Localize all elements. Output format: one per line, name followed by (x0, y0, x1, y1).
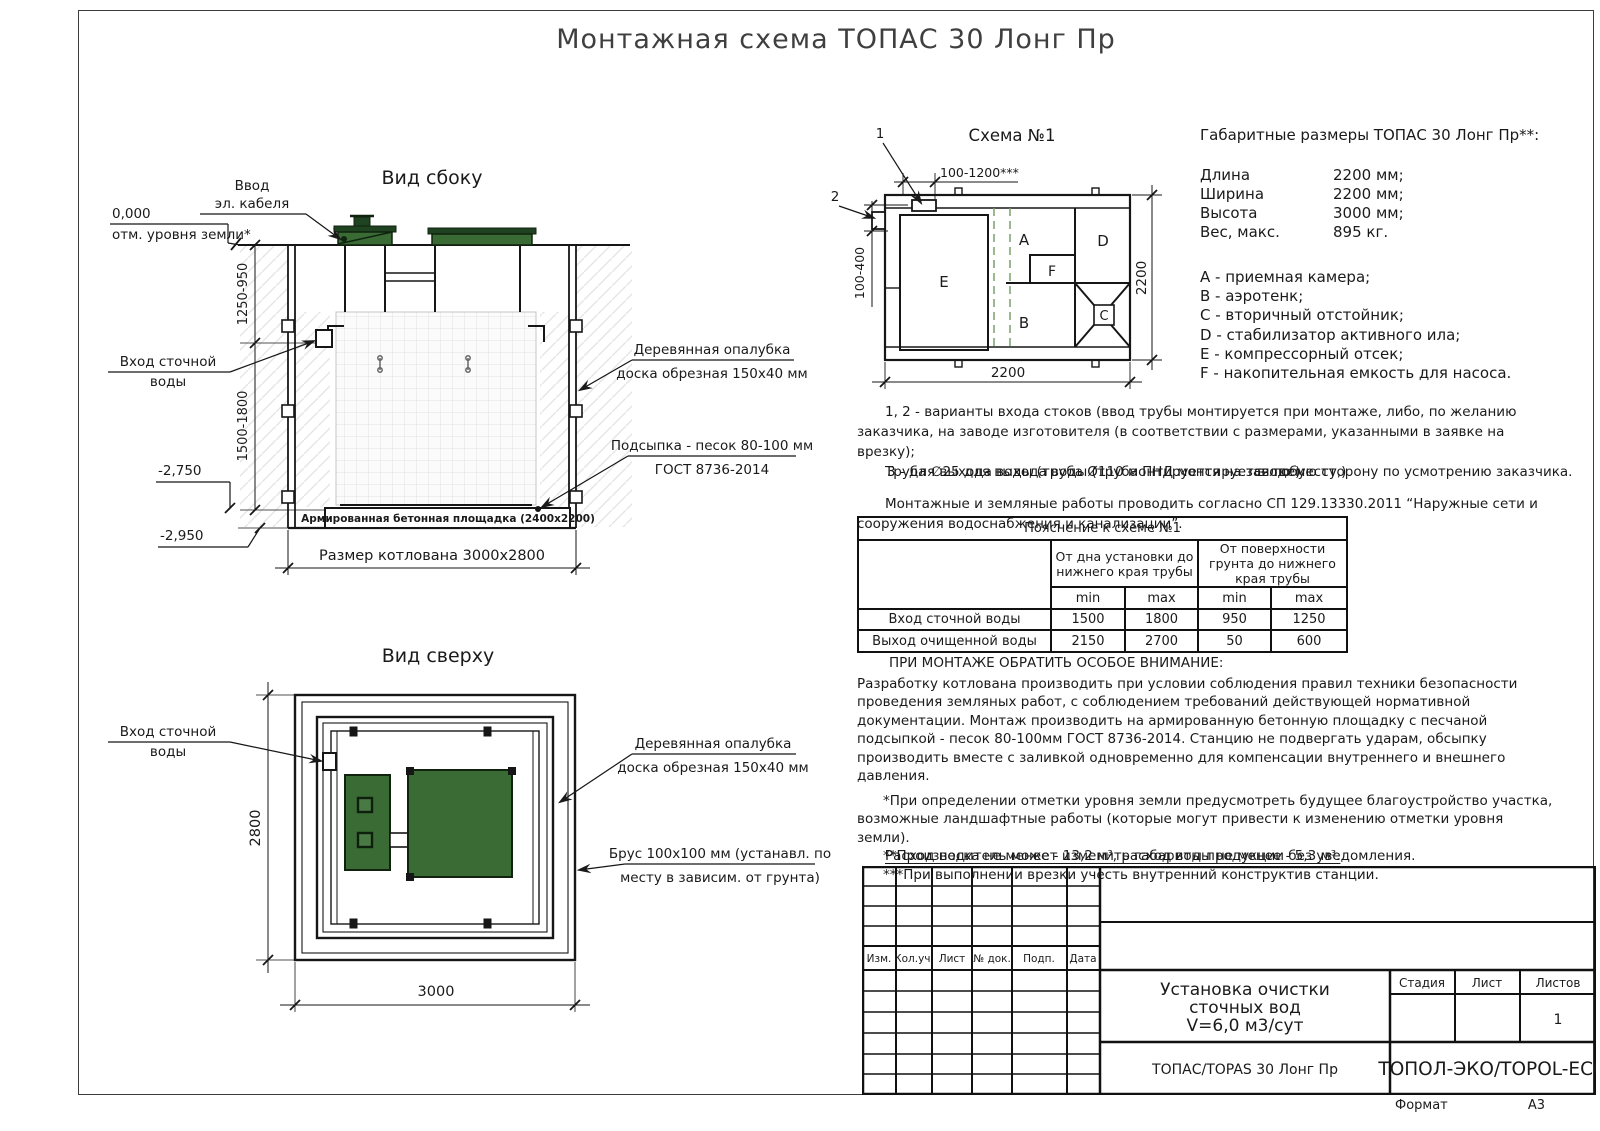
rev-header: Подп. (1023, 953, 1055, 965)
callout-2-label: 2 (831, 189, 840, 205)
note-overlap-b: 3 - для выхода воды (труба Ø110 монтируе… (887, 462, 1300, 482)
formwork-top-label-1: Деревянная опалубка (635, 736, 792, 752)
table-corner-cell (858, 540, 1051, 609)
concrete-pad-label: Армированная бетонная площадка (2400х220… (301, 513, 595, 525)
pipe-variant-1 (912, 200, 936, 211)
top-view-drawing: Вид сверху Вход сточной воды (80, 640, 850, 1040)
beam-label-1: Брус 100х100 мм (устанавл. по (609, 846, 831, 862)
page-title: Монтажная схема ТОПАС 30 Лонг Пр (78, 24, 1594, 55)
spec-label: Ширина (1200, 185, 1333, 204)
footnote-1: *При определении отметки уровня земли пр… (857, 792, 1557, 848)
rev-header: Изм. (867, 953, 892, 965)
side-view-drawing: Вид сбоку Армированная бетонная площадка… (80, 160, 850, 612)
company-name: ТОПОЛ-ЭКО/TOPOL-ECO (1377, 1059, 1596, 1080)
spec-row: Высота 3000 мм; (1200, 204, 1590, 223)
dim-top-label: 100-1200*** (940, 165, 1019, 180)
legend-item: F - накопительная емкость для насоса. (1200, 364, 1590, 383)
table-group-2: От поверхности грунта до нижнего края тр… (1198, 540, 1347, 587)
schema-drawing: Схема №1 E A F B D C 1 2 (820, 115, 1200, 405)
spec-label: Длина (1200, 166, 1333, 185)
spec-value: 895 кг. (1333, 223, 1388, 242)
spec-value: 2200 мм; (1333, 185, 1404, 204)
cable-entry-label-1: Ввод (235, 178, 270, 194)
legend-item: D - стабилизатор активного ила; (1200, 326, 1590, 345)
inlet-top-label-1: Вход сточной (120, 724, 217, 740)
table-row: Выход очищенной воды 2150 2700 50 600 (858, 630, 1347, 652)
spec-label: Вес, макс. (1200, 223, 1333, 242)
row-label: Выход очищенной воды (858, 630, 1051, 652)
project-title-line3: V=6,0 м3/сут (1187, 1016, 1304, 1036)
explanation-table: Пояснение к схеме №1 От дна установки до… (857, 516, 1348, 653)
dim-2800-label: 2800 (248, 810, 264, 847)
table-row: Вход сточной воды 1500 1800 950 1250 (858, 609, 1347, 630)
bedding-label-2: ГОСТ 8736-2014 (655, 462, 769, 478)
cover-connector (390, 833, 408, 847)
table-title: Пояснение к схеме №1 (858, 517, 1347, 540)
bedding-label-1: Подсыпка - песок 80-100 мм (611, 438, 813, 454)
beam-leader (579, 864, 625, 870)
comp-a-label: A (1019, 231, 1030, 249)
row-value: 1250 (1271, 609, 1347, 630)
legend-item: B - аэротенк; (1200, 287, 1590, 306)
sheets-label: Листов (1536, 976, 1581, 990)
format-row: Формат А3 (1395, 1098, 1575, 1113)
legend-item: E - компрессорный отсек; (1200, 345, 1590, 364)
format-value: А3 (1528, 1098, 1545, 1113)
pit-dim-label: Размер котлована 3000х2800 (319, 548, 545, 564)
comp-d-label: D (1097, 232, 1109, 250)
row-value: 1500 (1051, 609, 1125, 630)
row-value: 2700 (1125, 630, 1198, 652)
row-value: 2150 (1051, 630, 1125, 652)
top-view-title: Вид сверху (382, 645, 494, 667)
table-min-header: min (1198, 587, 1271, 609)
sheet-label: Лист (1472, 976, 1502, 990)
side-view-title: Вид сбоку (381, 167, 482, 189)
spec-label: Высота (1200, 204, 1333, 223)
format-label: Формат (1395, 1098, 1448, 1113)
spec-row: Вес, макс. 895 кг. (1200, 223, 1590, 242)
note-overlapped-line: Труба ∅25 для выхода воды (труба ПНД мон… (857, 462, 1557, 482)
warning-body: Разработку котлована производить при усл… (857, 675, 1557, 786)
inlet-port-top (323, 753, 336, 770)
beam-label-2: месту в зависим. от грунта) (620, 870, 820, 886)
row-label: Вход сточной воды (858, 609, 1051, 630)
sheets-value: 1 (1554, 1012, 1563, 1028)
level-bottom-label: -2,950 (160, 528, 204, 544)
cable-entry-label-2: эл. кабеля (215, 196, 289, 212)
dim-upper-label: 1250-950 (236, 263, 251, 326)
zero-mark-label: 0,000 (112, 206, 151, 222)
stage-table: Стадия Лист Листов 1 (1399, 976, 1580, 1028)
specs-block: Габаритные размеры ТОПАС 30 Лонг Пр**: Д… (1200, 126, 1590, 383)
dim-right-label: 2200 (1134, 261, 1150, 295)
project-title-line1: Установка очистки (1160, 980, 1330, 1000)
dim-lower-label: 1500-1800 (236, 391, 251, 462)
table-max-header: max (1125, 587, 1198, 609)
table-group-1: От дна установки до нижнего края трубы (1051, 540, 1198, 587)
project-title: Установка очистки сточных вод V=6,0 м3/с… (1160, 980, 1330, 1036)
rev-header: Кол.уч. (894, 953, 934, 965)
title-block: Изм. Кол.уч. Лист № док. Подп. Дата Уста… (862, 866, 1596, 1095)
big-cover (406, 767, 516, 881)
consumption-note: Расход песка не менее - 13,2 м³, расход … (885, 848, 1340, 864)
revision-headers: Изм. Кол.уч. Лист № док. Подп. Дата (867, 953, 1097, 965)
rev-header: № док. (973, 953, 1011, 965)
rev-header: Дата (1069, 953, 1096, 965)
dim-bottom-label: 2200 (991, 365, 1025, 381)
dashed-partitions (994, 208, 1010, 347)
inlet-top-label-2: воды (150, 744, 186, 760)
level-pad-leader (156, 482, 235, 513)
ground-level-label: отм. уровня земли* (112, 227, 251, 243)
note-variants: 1, 2 - варианты входа стоков (ввод трубы… (857, 402, 1557, 462)
row-value: 600 (1271, 630, 1347, 652)
row-value: 1800 (1125, 609, 1198, 630)
comp-c-label: C (1099, 309, 1108, 324)
callout-1-label: 1 (876, 126, 885, 142)
table-min-header: min (1051, 587, 1125, 609)
note-overlap-tail: в любую сторону по усмотрению заказчика. (1257, 462, 1572, 482)
tank-body (336, 312, 536, 505)
left-lid (334, 216, 396, 245)
notes-block: 1, 2 - варианты входа стоков (ввод трубы… (857, 402, 1557, 534)
spec-value: 2200 мм; (1333, 166, 1404, 185)
stage-label: Стадия (1399, 976, 1445, 990)
formwork-top-label-2: доска обрезная 150х40 мм (617, 760, 808, 776)
level-pad-label: -2,750 (158, 463, 202, 479)
row-value: 950 (1198, 609, 1271, 630)
legend-item: A - приемная камера; (1200, 268, 1590, 287)
spec-row: Ширина 2200 мм; (1200, 185, 1590, 204)
specs-heading: Габаритные размеры ТОПАС 30 Лонг Пр**: (1200, 126, 1590, 144)
right-lid (428, 228, 536, 245)
comp-e-label: E (939, 273, 948, 291)
rev-header: Лист (939, 953, 966, 965)
comp-f-label: F (1048, 264, 1056, 280)
pipe-variant-2 (872, 212, 885, 229)
dim-3000-label: 3000 (418, 984, 455, 1000)
inlet-top-leader (108, 742, 321, 761)
spec-row: Длина 2200 мм; (1200, 166, 1590, 185)
product-name: ТОПАС/TOPAS 30 Лонг Пр (1151, 1062, 1338, 1078)
small-cover (345, 775, 390, 870)
formwork-label-1: Деревянная опалубка (634, 342, 791, 358)
warning-heading: ПРИ МОНТАЖЕ ОБРАТИТЬ ОСОБОЕ ВНИМАНИЕ: (889, 654, 1557, 673)
row-value: 50 (1198, 630, 1271, 652)
legend-block: A - приемная камера; B - аэротенк; C - в… (1200, 268, 1590, 383)
schema-title: Схема №1 (969, 126, 1056, 145)
tank-necks (345, 245, 520, 312)
comp-b-label: B (1019, 314, 1029, 332)
schema-partitions (885, 208, 1130, 350)
inlet-label-2: воды (150, 374, 186, 390)
inlet-port (316, 330, 332, 347)
formwork-top-leader (560, 754, 632, 802)
formwork-label-2: доска обрезная 150х40 мм (616, 366, 807, 382)
inlet-label-1: Вход сточной (120, 354, 217, 370)
spec-value: 3000 мм; (1333, 204, 1404, 223)
dim-left-label: 100-400 (852, 247, 867, 299)
project-title-line2: сточных вод (1189, 998, 1301, 1018)
table-max-header: max (1271, 587, 1347, 609)
legend-item: C - вторичный отстойник; (1200, 306, 1590, 325)
